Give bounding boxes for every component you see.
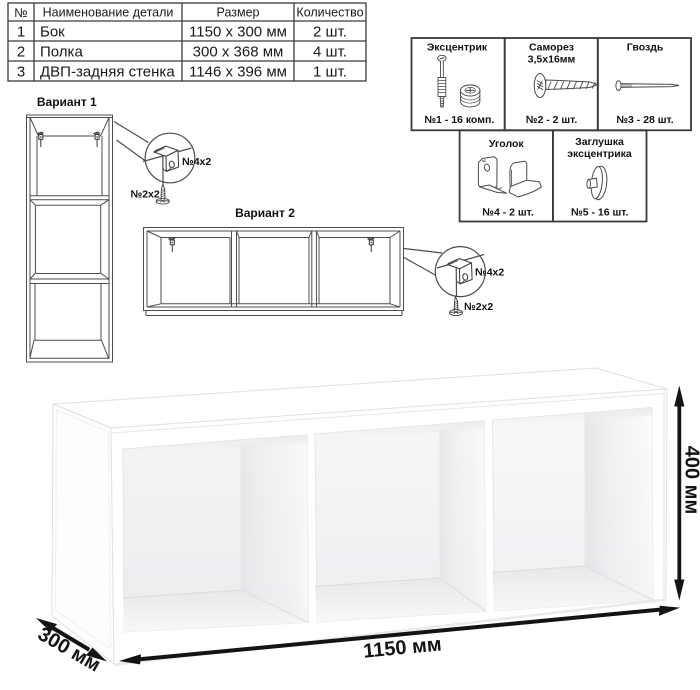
svg-text:ДВП-задняя стенка: ДВП-задняя стенка <box>40 64 175 81</box>
svg-text:Наименование детали: Наименование детали <box>43 6 174 20</box>
svg-text:№3 - 28 шт.: №3 - 28 шт. <box>616 114 673 126</box>
svg-text:2 шт.: 2 шт. <box>313 24 347 41</box>
svg-text:№4 - 2 шт.: №4 - 2 шт. <box>482 207 534 219</box>
svg-text:№4х2: №4х2 <box>182 156 211 168</box>
svg-text:300 х 368 мм: 300 х 368 мм <box>193 44 284 61</box>
svg-text:Размер: Размер <box>217 6 260 20</box>
svg-text:Заглушка: Заглушка <box>575 136 624 148</box>
svg-text:№2 - 2 шт.: №2 - 2 шт. <box>526 114 578 126</box>
svg-text:2: 2 <box>17 44 25 61</box>
svg-text:№2х2: №2х2 <box>464 301 493 313</box>
svg-text:Вариант 1: Вариант 1 <box>37 95 97 109</box>
svg-text:1146 х 396 мм: 1146 х 396 мм <box>189 64 287 81</box>
svg-text:3: 3 <box>17 64 25 81</box>
svg-text:Бок: Бок <box>40 24 65 41</box>
svg-text:эксцентрика: эксцентрика <box>567 148 632 160</box>
svg-text:№5 - 16 шт.: №5 - 16 шт. <box>571 207 628 219</box>
svg-text:№: № <box>14 6 27 20</box>
svg-text:Вариант 2: Вариант 2 <box>235 206 295 220</box>
svg-text:Гвоздь: Гвоздь <box>627 42 664 54</box>
svg-text:4 шт.: 4 шт. <box>313 44 347 61</box>
svg-text:Количество: Количество <box>296 6 363 20</box>
svg-text:1: 1 <box>17 24 25 41</box>
svg-text:3,5х16мм: 3,5х16мм <box>528 54 576 66</box>
svg-text:Полка: Полка <box>40 44 83 61</box>
svg-text:1 шт.: 1 шт. <box>313 64 347 81</box>
svg-text:Эксцентрик: Эксцентрик <box>427 42 488 54</box>
svg-text:№2х2: №2х2 <box>131 189 160 201</box>
svg-text:№1 - 16 комп.: №1 - 16 комп. <box>424 114 494 126</box>
svg-text:Саморез: Саморез <box>529 42 574 54</box>
svg-text:400 мм: 400 мм <box>681 446 700 515</box>
svg-text:№4х2: №4х2 <box>475 267 504 279</box>
svg-text:1150 х 300 мм: 1150 х 300 мм <box>189 24 287 41</box>
svg-text:Уголок: Уголок <box>489 138 524 150</box>
